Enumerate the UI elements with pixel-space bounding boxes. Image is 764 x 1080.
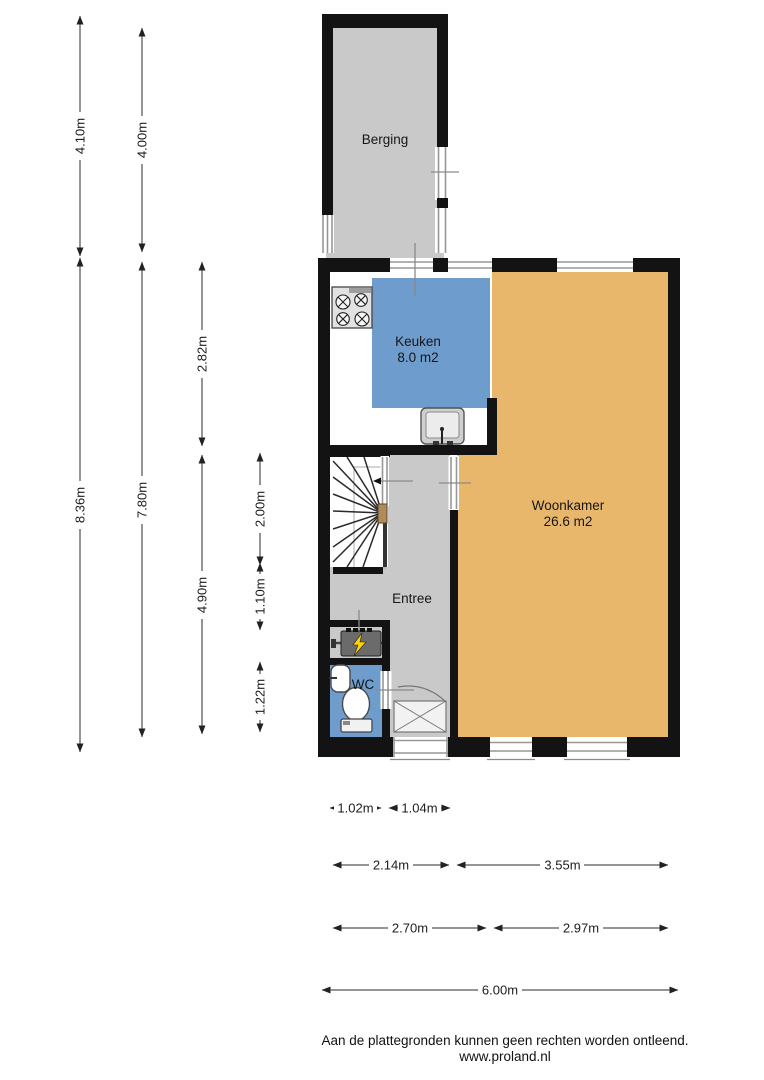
dim-1-02: 1.02m [337, 801, 373, 816]
washbasin-icon [329, 665, 350, 692]
horizontal-dimensions: 1.02m 1.04m 2.14m 3.55m 2.70m 2.97m 6.00… [322, 800, 678, 998]
dim-3-55: 3.55m [544, 858, 580, 873]
stove-icon [332, 287, 372, 328]
kitchen-woonkamer-wall [487, 398, 497, 448]
entree-woonkamer-wall [450, 509, 458, 737]
dim-6-00: 6.00m [482, 983, 518, 998]
dim-2-70: 2.70m [392, 921, 428, 936]
sink-icon [421, 408, 464, 445]
dim-1-10: 1.10m [253, 578, 268, 614]
footer: Aan de plattegronden kunnen geen rechten… [321, 1033, 688, 1064]
dim-2-82: 2.82m [195, 336, 210, 372]
berging-window-icon [320, 215, 334, 253]
wc-label: WC [352, 677, 375, 692]
entree-label: Entree [392, 591, 432, 606]
floorplan-page: Berging Keuken 8.0 m2 Woonkamer 26.6 m2 … [0, 0, 764, 1080]
woonkamer-bottom-window-icon [487, 739, 535, 760]
footer-disclaimer: Aan de plattegronden kunnen geen rechten… [321, 1033, 688, 1048]
footer-website: www.proland.nl [458, 1049, 551, 1064]
dim-7-80: 7.80m [135, 482, 150, 518]
woonkamer-label: Woonkamer [532, 498, 605, 513]
woonkamer-floor-extension [457, 455, 492, 737]
toilet-icon [341, 688, 372, 733]
dim-4-90: 4.90m [195, 577, 210, 613]
dim-1-04: 1.04m [401, 801, 437, 816]
woonkamer-top-window-icon [557, 258, 633, 271]
dim-4-10: 4.10m [73, 118, 88, 154]
dim-4-00: 4.00m [135, 122, 150, 158]
kitchen-top-window2-icon [448, 258, 492, 271]
berging-label: Berging [362, 132, 409, 147]
berging-door-icon [431, 147, 459, 200]
floorplan-drawing: Berging Keuken 8.0 m2 Woonkamer 26.6 m2 … [0, 0, 764, 1080]
dim-8-36: 8.36m [73, 487, 88, 523]
stairs-newel-post [378, 504, 387, 523]
dim-1-22: 1.22m [253, 679, 268, 715]
berging-window2-icon [435, 208, 449, 253]
front-door-opening [390, 737, 450, 760]
dim-2-14: 2.14m [373, 858, 409, 873]
keuken-label: Keuken [395, 334, 441, 349]
keuken-area: 8.0 m2 [397, 350, 438, 365]
vertical-dimensions: 4.10m 8.36m 4.00m 7.80m 2.82m 4.90m 2.00… [71, 16, 269, 752]
dim-2-00: 2.00m [253, 491, 268, 527]
woonkamer-area: 26.6 m2 [544, 514, 593, 529]
dim-2-97: 2.97m [563, 921, 599, 936]
kitchen-top-window-icon [390, 258, 433, 271]
woonkamer-bottom-window2-icon [564, 739, 630, 760]
